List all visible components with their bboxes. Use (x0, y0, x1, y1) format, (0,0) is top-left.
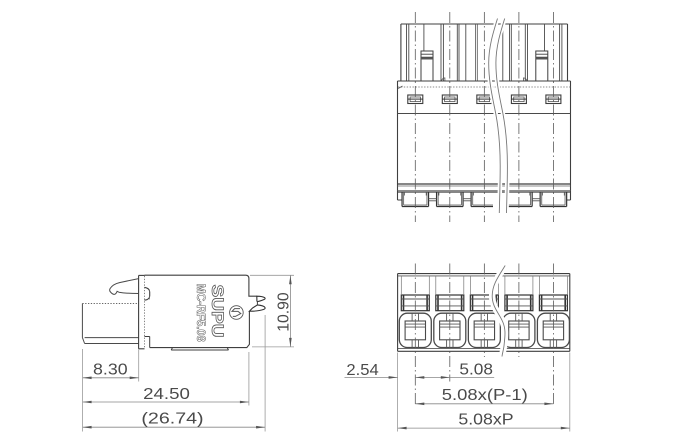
svg-text:5.08: 5.08 (459, 362, 493, 379)
svg-text:SUPU: SUPU (208, 285, 226, 338)
svg-text:MC-RF5.08: MC-RF5.08 (194, 284, 208, 342)
svg-text:5.08xP: 5.08xP (458, 412, 513, 429)
svg-text:24.50: 24.50 (143, 386, 190, 403)
svg-text:8.30: 8.30 (93, 362, 128, 379)
svg-text:10.90: 10.90 (276, 292, 293, 332)
svg-text:5.08x(P-1): 5.08x(P-1) (442, 387, 528, 404)
svg-text:2.54: 2.54 (346, 362, 379, 379)
svg-text:(26.74): (26.74) (141, 410, 203, 427)
